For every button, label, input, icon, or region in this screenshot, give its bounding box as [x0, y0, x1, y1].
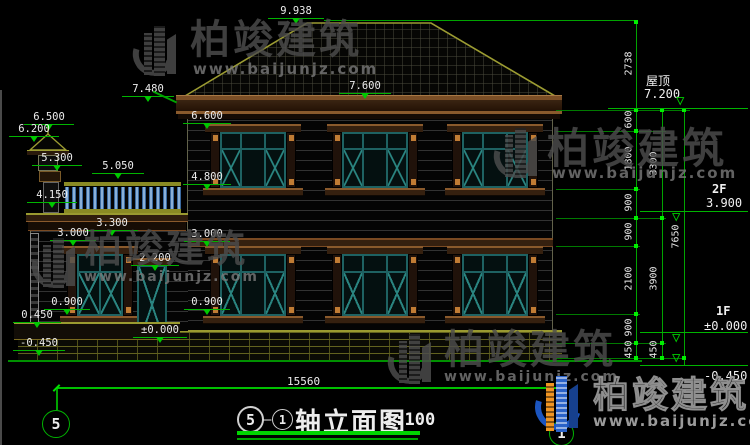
- level-marker: 0.450: [13, 309, 61, 323]
- window-glazing: [342, 254, 408, 316]
- watermark-url-text: www.baijunjz.com: [593, 414, 750, 429]
- axis-leader: [56, 389, 58, 410]
- dim-text: 3900: [649, 257, 660, 301]
- watermark-brand-text: 柏竣建筑: [84, 230, 248, 268]
- title-underline-thin: [237, 438, 418, 440]
- watermark-url-text: www.baijunjz.com: [552, 166, 737, 181]
- elevation-triangle: ▽: [676, 95, 684, 108]
- elevation-triangle: ▽: [672, 352, 680, 365]
- title-axis-start-bubble: 5: [237, 406, 264, 433]
- window-sill: [445, 188, 545, 196]
- level-marker: -0.450: [13, 337, 65, 351]
- roof-level-value: 7.200: [644, 87, 680, 101]
- window-pilaster: [452, 132, 462, 188]
- title-underline-thick: [237, 431, 420, 435]
- window-sill: [325, 316, 425, 324]
- window-sill: [445, 316, 545, 324]
- window-1f-2: [332, 246, 418, 324]
- balustrade-balusters: [64, 187, 181, 209]
- eave-cornice-band: [176, 100, 562, 111]
- window-1f-3: [452, 246, 538, 324]
- window-glazing: [342, 132, 408, 188]
- window-head: [447, 246, 543, 254]
- window-pilaster: [408, 132, 418, 188]
- brand-logo-icon: [388, 332, 434, 392]
- watermark-mid-left: 柏竣建筑 www.baijunjz.com: [32, 228, 312, 288]
- dim-text: 2100: [624, 257, 635, 301]
- window-pilaster: [286, 132, 296, 188]
- dim-text: 2738: [624, 42, 635, 86]
- watermark-url-text: www.baijunjz.com: [84, 270, 259, 284]
- extension-line: [556, 218, 666, 219]
- brand-logo-icon: [535, 374, 591, 440]
- brand-logo-icon: [494, 126, 540, 186]
- floor1-value: ±0.000: [704, 319, 747, 333]
- window-2f-1: [210, 124, 296, 196]
- level-marker: 5.300: [32, 152, 82, 166]
- floor1-label: 1F: [716, 304, 730, 318]
- level-marker: 6.200: [9, 123, 59, 137]
- brand-logo-footer: 柏竣建筑 www.baijunjz.com: [535, 372, 750, 442]
- level-line: [640, 332, 748, 333]
- level-marker: 4.150: [27, 189, 77, 203]
- window-head: [327, 124, 423, 132]
- level-line: [640, 365, 748, 366]
- elevation-triangle: ▽: [672, 332, 680, 345]
- window-2f-2: [332, 124, 418, 196]
- grip: [682, 356, 686, 360]
- level-line: [640, 211, 748, 212]
- level-marker-zero: ±0.000: [133, 324, 187, 338]
- grip: [660, 356, 664, 360]
- watermark-mid-right: 柏竣建筑 www.baijunjz.com: [494, 126, 750, 186]
- level-marker: 0.900: [184, 296, 230, 310]
- window-sill: [203, 316, 303, 324]
- window-pilaster: [332, 254, 342, 316]
- window-pilaster: [452, 254, 462, 316]
- brand-logo-icon: [32, 236, 78, 292]
- level-marker: 5.050: [92, 160, 144, 174]
- window-pilaster: [408, 254, 418, 316]
- title-axis-end-bubble: 1: [272, 409, 293, 430]
- grip: [634, 244, 638, 248]
- level-marker: 6.600: [183, 110, 231, 124]
- level-marker: 4.800: [183, 171, 231, 185]
- watermark-brand-text: 柏竣建筑: [593, 378, 749, 414]
- window-sill: [325, 188, 425, 196]
- brand-logo-icon: [133, 24, 179, 82]
- level-marker: 7.600: [339, 80, 391, 94]
- page-edge-line: [0, 90, 2, 445]
- grip: [634, 187, 638, 191]
- dim-text: 900: [624, 210, 635, 254]
- floor2-value: 3.900: [706, 196, 742, 210]
- grip: [660, 341, 664, 345]
- drawing-scale: 1:100: [384, 410, 435, 430]
- elevation-triangle: ▽: [672, 211, 680, 224]
- grip: [660, 216, 664, 220]
- watermark-url-text: www.baijunjz.com: [193, 62, 378, 77]
- window-sill: [203, 188, 303, 196]
- grip: [634, 312, 638, 316]
- level-marker: 7.480: [122, 83, 174, 97]
- grip: [634, 356, 638, 360]
- window-head: [205, 124, 301, 132]
- grip: [634, 216, 638, 220]
- watermark-top: 柏竣建筑 www.baijunjz.com: [133, 18, 393, 80]
- elevation-drawing-canvas: 9.938 7.480 7.600 6.600 6.500 6.200 5.30…: [0, 0, 750, 445]
- grip: [634, 341, 638, 345]
- watermark-brand-text: 柏竣建筑: [444, 330, 616, 370]
- watermark-brand-text: 柏竣建筑: [190, 20, 362, 60]
- window-pilaster: [332, 132, 342, 188]
- grip: [634, 20, 638, 24]
- window-pilaster: [528, 254, 538, 316]
- level-marker: 0.900: [44, 296, 90, 310]
- title-dash: —: [263, 412, 271, 428]
- window-head: [327, 246, 423, 254]
- axis-bubble-5: 5: [42, 410, 70, 438]
- window-glazing: [462, 254, 528, 316]
